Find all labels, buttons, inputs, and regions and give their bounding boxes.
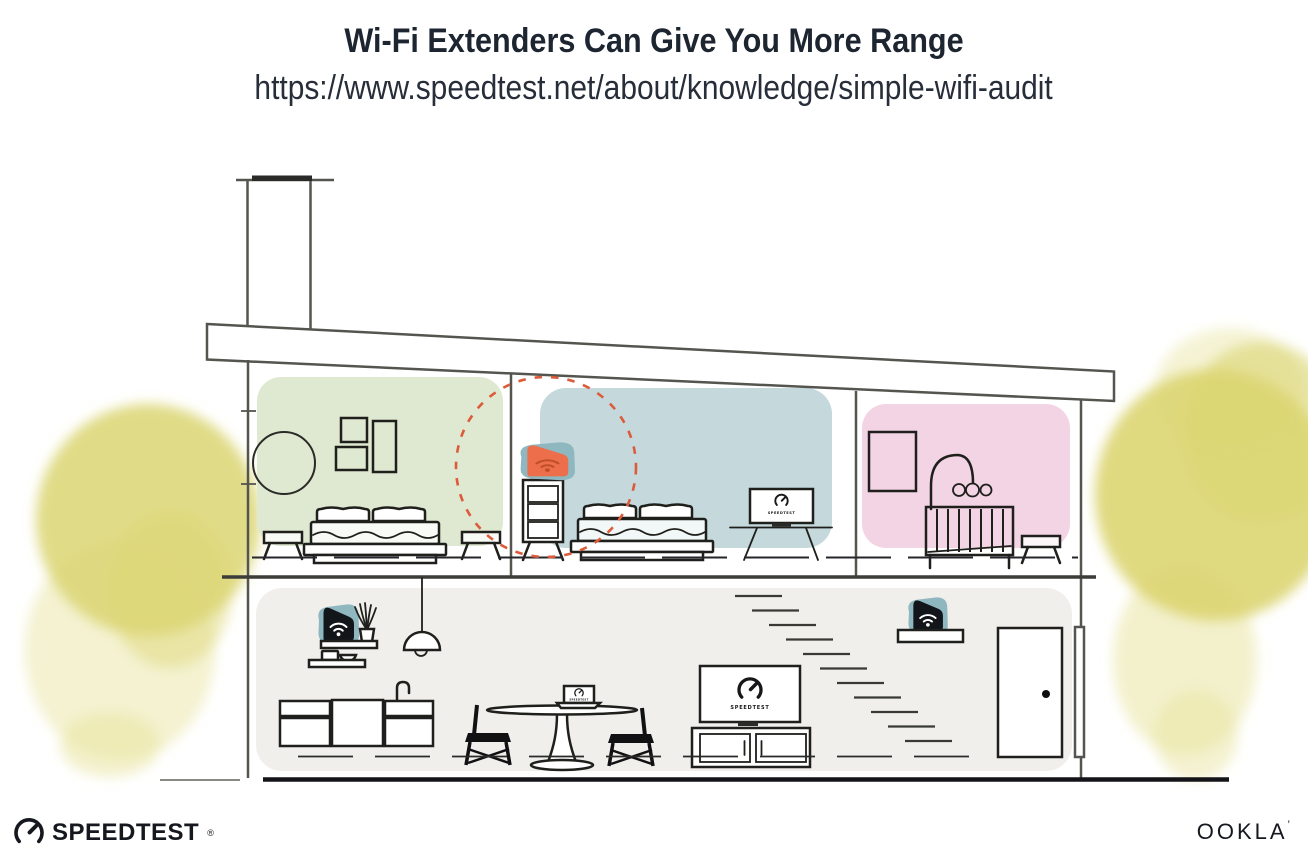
- cup: [322, 651, 338, 660]
- laptop: SPEEDTEST: [557, 686, 600, 708]
- speedtest-gauge-icon: [14, 818, 44, 848]
- wall-shelf: [309, 660, 365, 667]
- double-bed: [304, 508, 446, 564]
- nursery-wall: [862, 404, 1070, 548]
- tv-speedtest-label: SPEEDTEST: [768, 511, 796, 515]
- header: Wi-Fi Extenders Can Give You More Range …: [0, 22, 1308, 108]
- wifi-extender-highlighted: [520, 442, 574, 480]
- right-tree: [1095, 328, 1308, 780]
- page-url: https://www.speedtest.net/about/knowledg…: [255, 69, 1053, 108]
- double-bed: [571, 505, 713, 561]
- living-tv: SPEEDTEST: [692, 666, 810, 767]
- front-door: [998, 628, 1062, 757]
- trademark-tick: ’: [1288, 819, 1290, 831]
- wall-shelf: [321, 641, 377, 648]
- ookla-wordmark: OOKLA: [1197, 819, 1288, 844]
- infographic-canvas: Wi-Fi Extenders Can Give You More Range …: [0, 0, 1308, 861]
- left-tree: [25, 404, 260, 777]
- ookla-logo: OOKLA’: [1197, 819, 1290, 845]
- tv-console: [692, 728, 810, 767]
- wall-shelf: [898, 630, 963, 642]
- page-title: Wi-Fi Extenders Can Give You More Range: [344, 22, 963, 61]
- wifi-router: [318, 604, 359, 645]
- tv-speedtest-label: SPEEDTEST: [730, 705, 769, 711]
- speedtest-wordmark: SPEEDTEST: [52, 819, 199, 847]
- nursery-stool: [1022, 536, 1060, 563]
- door-knob: [1042, 690, 1050, 698]
- chimney: [236, 176, 334, 333]
- door-sidelight: [1075, 627, 1084, 757]
- registered-mark: ®: [207, 828, 214, 838]
- speedtest-logo: SPEEDTEST®: [14, 818, 214, 848]
- dresser: [523, 480, 563, 560]
- house-illustration: SPEEDTEST: [0, 0, 1308, 861]
- laptop-speedtest-label: SPEEDTEST: [569, 698, 588, 702]
